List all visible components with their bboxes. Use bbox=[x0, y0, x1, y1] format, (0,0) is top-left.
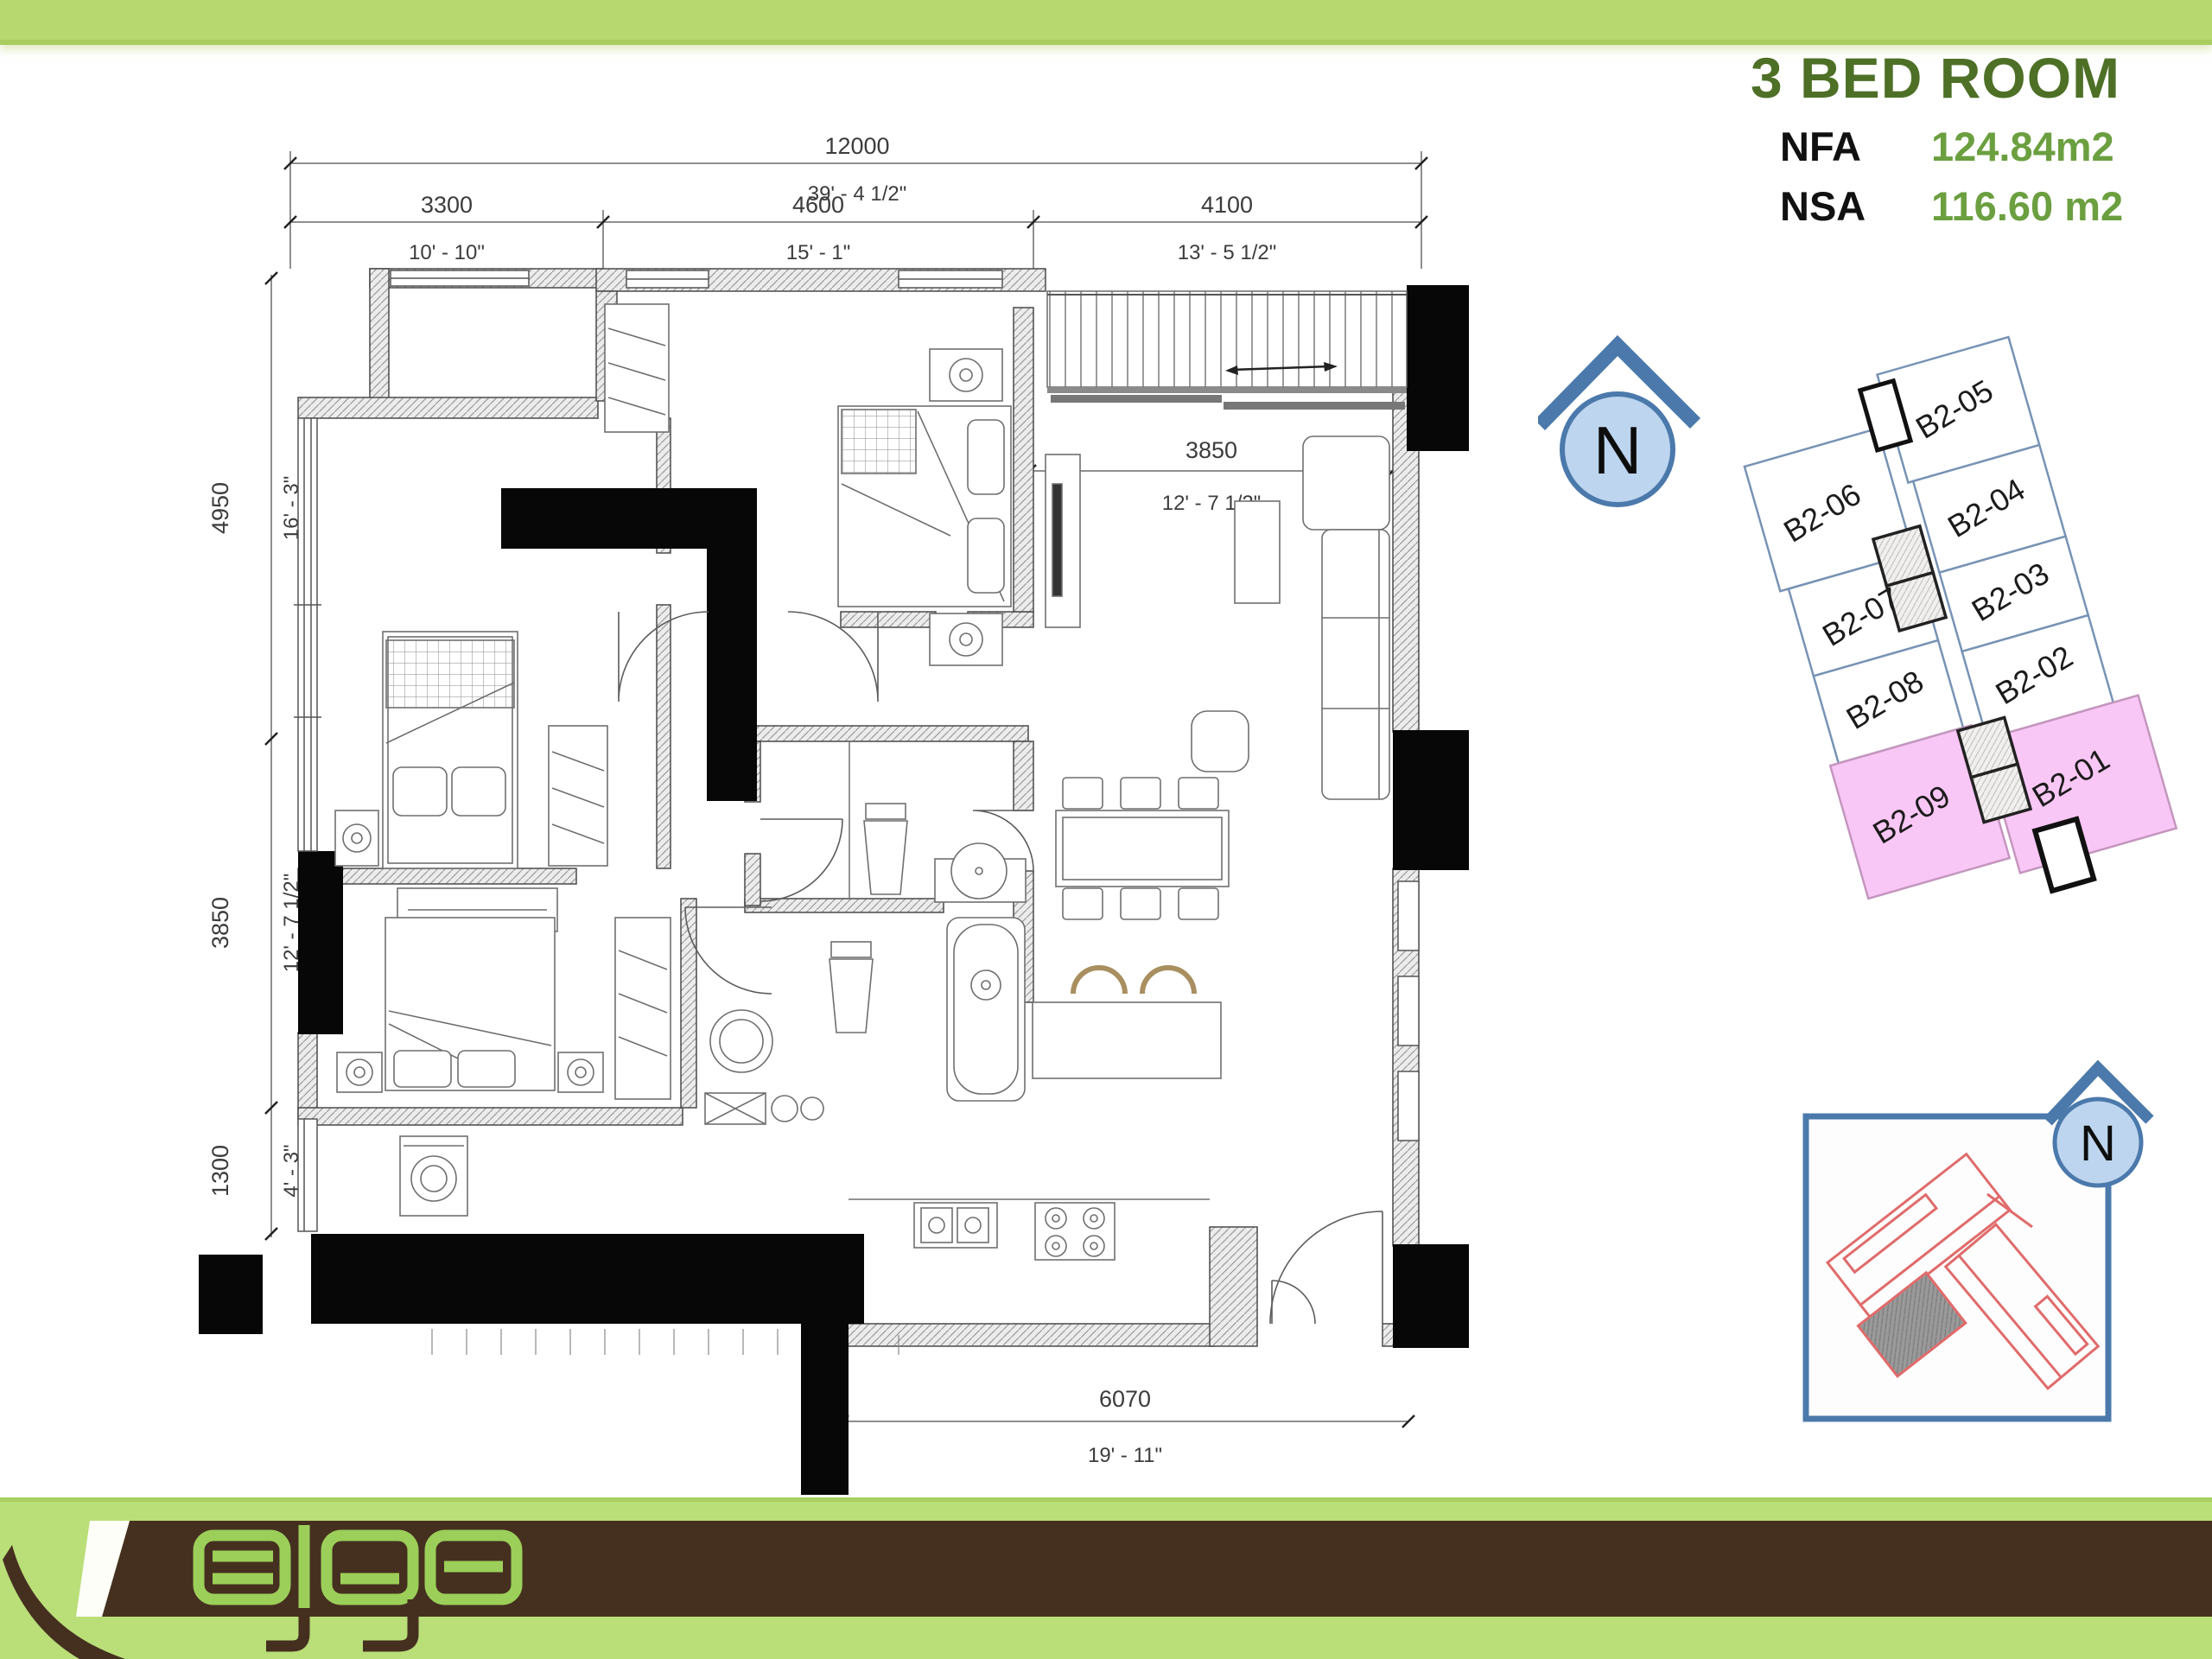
washing-machine-icon bbox=[400, 1136, 467, 1216]
bed3 bbox=[385, 918, 555, 1090]
floor-plan: 12000 39' - 4 1/2" 3300 10' - 10" 4600 1… bbox=[199, 121, 1503, 1495]
wardrobe-bed2 bbox=[549, 726, 607, 866]
svg-text:3300: 3300 bbox=[421, 192, 473, 218]
svg-text:4100: 4100 bbox=[1201, 192, 1253, 218]
master-bed bbox=[838, 406, 1011, 607]
dining-set bbox=[1056, 778, 1229, 919]
north-indicator: N bbox=[1540, 346, 1695, 505]
slide: 12000 39' - 4 1/2" 3300 10' - 10" 4600 1… bbox=[0, 0, 2212, 1659]
nfa-label: NFA bbox=[1780, 123, 1931, 170]
footer: B2 – 01,09 bbox=[0, 1497, 2212, 1659]
coffee-table bbox=[1235, 501, 1280, 603]
nfa-value: 124.84m2 bbox=[1931, 123, 2143, 170]
toilet-icon bbox=[829, 959, 873, 1033]
svg-text:10' - 10": 10' - 10" bbox=[409, 241, 485, 264]
svg-text:4600: 4600 bbox=[792, 192, 844, 218]
nsa-label: NSA bbox=[1780, 182, 1931, 230]
top-accent-bar bbox=[0, 0, 2212, 45]
footer-graphic bbox=[0, 1497, 2212, 1659]
nfa-row: NFA 124.84m2 bbox=[1780, 123, 2143, 170]
site-plan: N bbox=[1771, 1058, 2177, 1469]
wardrobe-master bbox=[605, 304, 669, 432]
bed2 bbox=[383, 632, 518, 868]
unit-stack: B2-06 B2-07 B2-08 B2-09 B2-05 B2-04 B2-0… bbox=[1730, 330, 2183, 940]
bathtub-icon bbox=[947, 918, 1025, 1101]
kitchen-island bbox=[1033, 1002, 1221, 1078]
page-title: 3 BED ROOM bbox=[1728, 45, 2143, 111]
bath-b bbox=[705, 918, 1025, 1124]
title-block: 3 BED ROOM NFA 124.84m2 NSA 116.60 m2 bbox=[1728, 45, 2143, 230]
toilet-icon bbox=[864, 821, 907, 894]
slider-door-panel bbox=[1051, 395, 1222, 403]
key-plan: N B2-06 bbox=[1538, 328, 2195, 968]
svg-text:13' - 5 1/2": 13' - 5 1/2" bbox=[1178, 241, 1277, 264]
svg-text:12000: 12000 bbox=[824, 133, 889, 159]
north-label: N bbox=[1593, 412, 1642, 488]
wardrobe-bed3 bbox=[615, 918, 671, 1099]
svg-text:4950: 4950 bbox=[207, 482, 233, 534]
bar-stools bbox=[1073, 968, 1194, 994]
armchair bbox=[1192, 711, 1249, 772]
north-label-small: N bbox=[2080, 1116, 2116, 1172]
slider-door-panel bbox=[1224, 402, 1405, 410]
balcony-railing bbox=[1047, 291, 1407, 410]
sofa bbox=[1303, 436, 1389, 799]
svg-text:19' - 11": 19' - 11" bbox=[1088, 1444, 1162, 1467]
svg-text:1300: 1300 bbox=[207, 1145, 233, 1197]
svg-text:3850: 3850 bbox=[1185, 437, 1237, 463]
kitchen bbox=[849, 1199, 1210, 1260]
svg-text:15' - 1": 15' - 1" bbox=[786, 241, 850, 264]
walls-black bbox=[199, 285, 1469, 1495]
nsa-value: 116.60 m2 bbox=[1931, 182, 2143, 230]
svg-text:3850: 3850 bbox=[207, 897, 233, 949]
nsa-row: NSA 116.60 m2 bbox=[1780, 182, 2143, 230]
exhaust-box-icon bbox=[705, 1093, 823, 1124]
bath-a bbox=[849, 741, 1026, 902]
north-indicator-small: N bbox=[2048, 1068, 2150, 1185]
svg-text:6070: 6070 bbox=[1099, 1386, 1151, 1412]
tv-console bbox=[1046, 454, 1080, 627]
